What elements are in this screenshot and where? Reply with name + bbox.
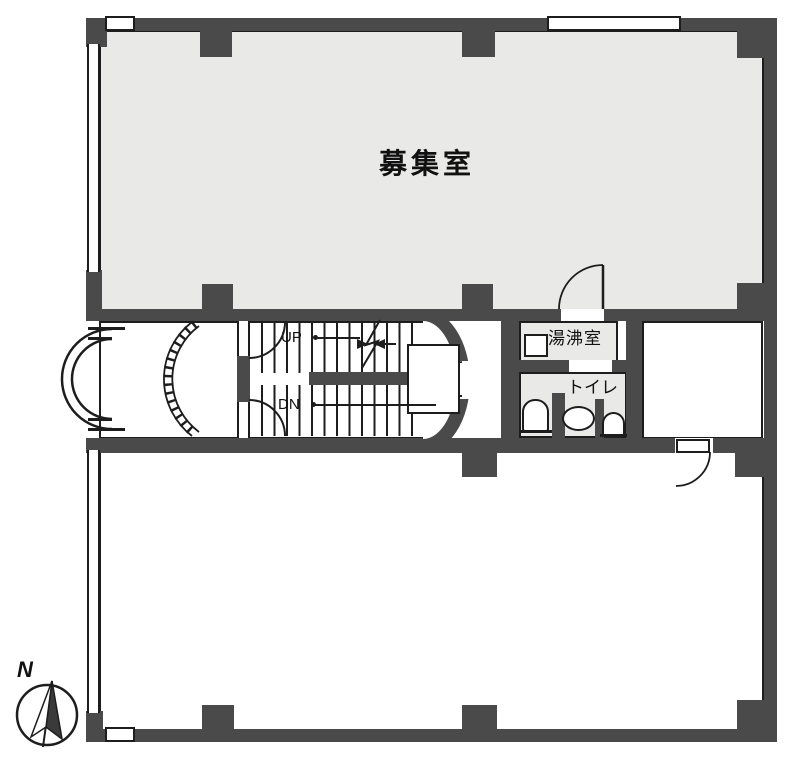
column-mid-a xyxy=(202,284,233,309)
wall-bottom xyxy=(86,729,777,742)
main-room-label: 募集室 xyxy=(379,150,475,178)
bottom-room-door xyxy=(640,435,720,495)
bay-stub-bottom xyxy=(88,428,125,431)
window-top-right xyxy=(547,16,681,31)
urinal-base xyxy=(600,434,627,437)
bottom-room-door-arc xyxy=(676,452,710,486)
stair-mid-rail xyxy=(309,372,408,385)
kitchenette-label: 湯沸室 xyxy=(548,330,602,347)
sink-square xyxy=(524,334,548,357)
bay-stub-bottom-inner xyxy=(88,418,112,421)
corner-top-left xyxy=(86,18,107,47)
entrance-bay xyxy=(55,315,135,445)
stairhall-doors xyxy=(237,315,297,445)
window-bottom xyxy=(105,727,135,742)
pier-band-right xyxy=(735,453,764,477)
compass-north-label: N xyxy=(17,659,33,681)
column-top-b xyxy=(462,31,495,57)
toilet-door-gap xyxy=(569,360,612,372)
bay-stub-top xyxy=(88,327,125,330)
corner-top-right xyxy=(737,18,777,58)
pier-left-mid xyxy=(86,270,102,321)
urinal xyxy=(602,412,625,436)
basin-oval xyxy=(562,406,595,431)
left-window-wall-upper xyxy=(87,44,100,272)
window-top-left xyxy=(105,16,135,31)
column-top-a xyxy=(200,31,232,57)
kblock-wall-right xyxy=(626,321,642,438)
toilet-label: トイレ xyxy=(567,379,618,396)
toilet-bowl-base xyxy=(519,430,552,433)
dn-leader-line xyxy=(315,404,436,406)
stairhall-door-top-arc xyxy=(249,322,285,358)
stair-break-symbol xyxy=(352,316,398,371)
toilet-bowl xyxy=(522,399,549,432)
floor-plan: UP DN 募集室 湯沸室 トイレ xyxy=(0,0,787,758)
kblock-wall-left xyxy=(501,321,519,438)
stairhall-door-bottom-arc xyxy=(249,400,285,436)
main-room-door-arc xyxy=(559,265,603,309)
right-room xyxy=(642,321,763,439)
pier-right-mid xyxy=(737,283,764,309)
column-bottom-a xyxy=(202,705,234,730)
column-bottom-b xyxy=(462,705,497,730)
curved-hatched-wall xyxy=(145,315,215,445)
wall-right xyxy=(764,18,777,742)
bay-stub-top-inner xyxy=(88,337,112,340)
main-room-door xyxy=(555,265,615,321)
corner-bottom-right xyxy=(737,700,764,730)
